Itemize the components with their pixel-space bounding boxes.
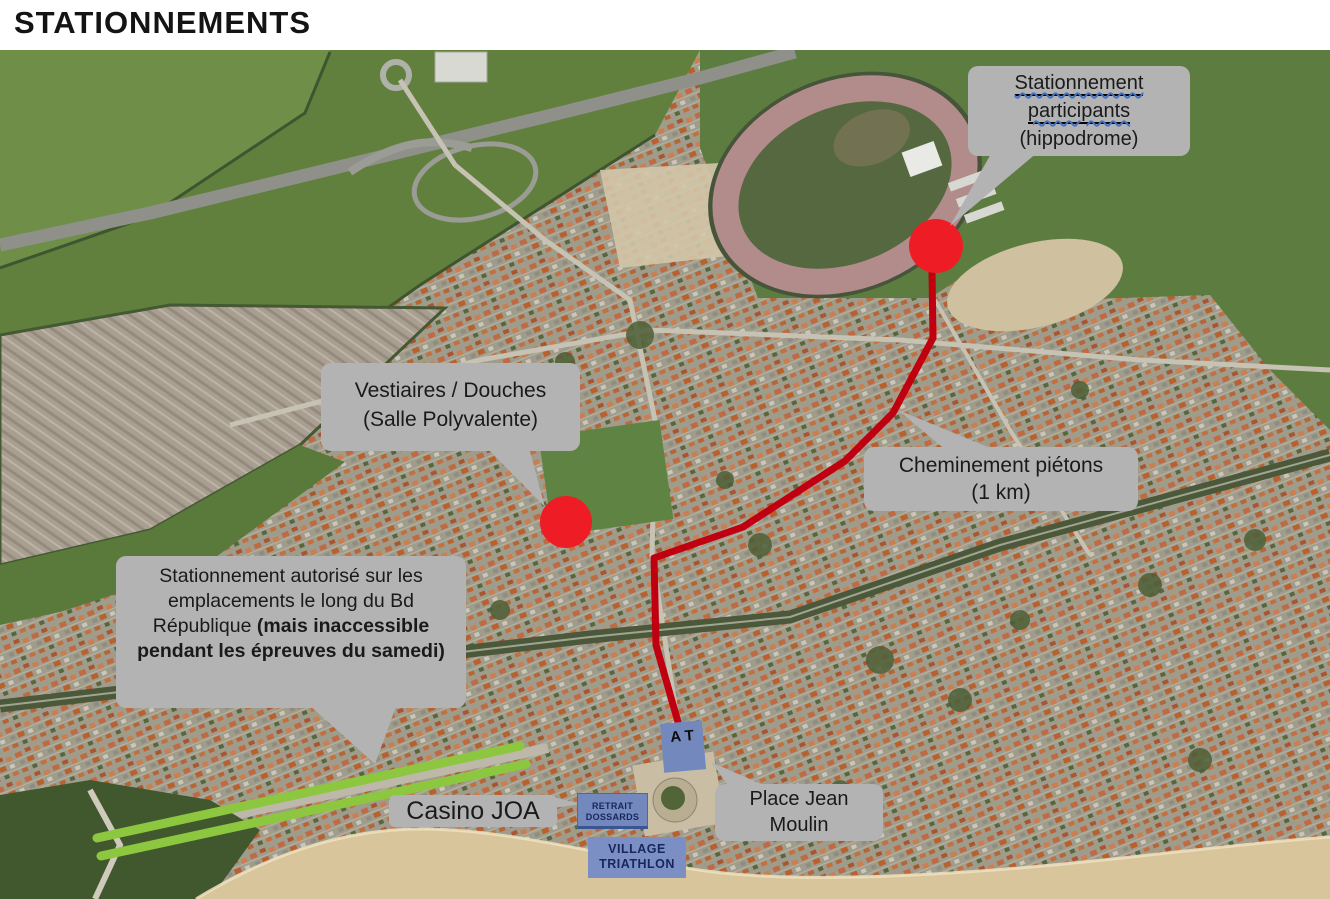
callout-text: participants xyxy=(1028,100,1130,124)
callout-cheminement-pietons: Cheminement piétons (1 km) xyxy=(864,447,1138,511)
callout-text: (hippodrome) xyxy=(968,125,1190,153)
marker-text: A xyxy=(670,728,682,746)
callout-stationnement-participants: Stationnement participants (hippodrome) xyxy=(968,66,1190,156)
retrait-dossards-box: RETRAIT DOSSARDS xyxy=(577,793,648,829)
callout-text: (1 km) xyxy=(864,479,1138,506)
callout-text: Stationnement xyxy=(1015,72,1144,96)
callout-text: Cheminement piétons xyxy=(864,452,1138,479)
callout-text: Casino JOA xyxy=(406,797,539,825)
callout-casino-joa: Casino JOA xyxy=(389,795,557,827)
callout-stationnement-bd-republique: Stationnement autorisé sur les emplaceme… xyxy=(116,556,466,708)
marker-text: DOSSARDS xyxy=(586,812,639,822)
callout-text: (Salle Polyvalente) xyxy=(321,405,580,434)
callout-text: Moulin xyxy=(715,812,883,838)
marker-text: VILLAGE xyxy=(608,842,666,856)
page-title: STATIONNEMENTS xyxy=(14,5,311,41)
callout-text: Place Jean xyxy=(715,786,883,812)
marker-text: T xyxy=(684,727,695,745)
callout-text: Vestiaires / Douches xyxy=(321,376,580,405)
satellite-map: Stationnement participants (hippodrome) … xyxy=(0,0,1330,899)
marker-salle-polyvalente xyxy=(540,496,592,548)
marker-text: RETRAIT xyxy=(592,801,633,811)
callout-place-jean-moulin: Place Jean Moulin xyxy=(715,784,883,841)
slide-header: STATIONNEMENTS xyxy=(0,0,1330,50)
village-triathlon-box: VILLAGE TRIATHLON xyxy=(588,837,686,878)
at-marker-box: A T xyxy=(660,720,706,772)
callout-vestiaires-douches: Vestiaires / Douches (Salle Polyvalente) xyxy=(321,363,580,451)
marker-hippodrome-parking xyxy=(909,219,963,273)
marker-text: TRIATHLON xyxy=(599,857,675,871)
